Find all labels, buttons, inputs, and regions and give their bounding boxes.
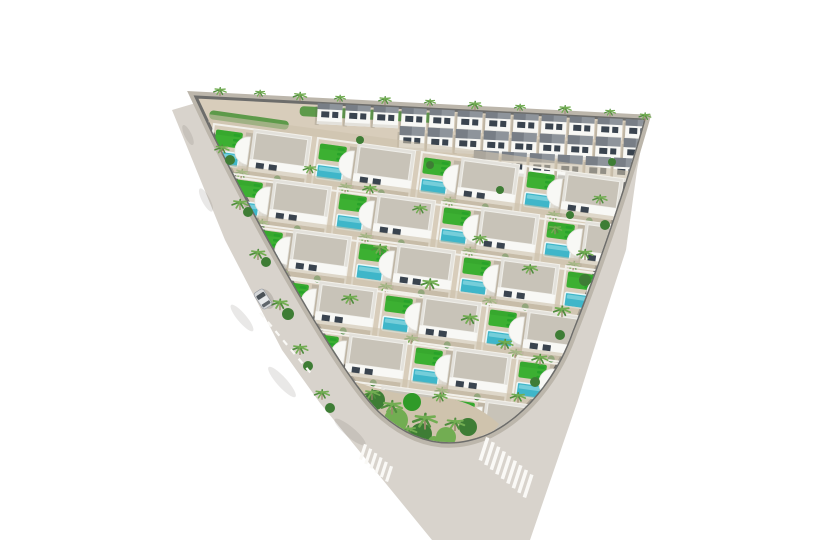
townhouse-window bbox=[459, 140, 467, 146]
townhouse-window bbox=[470, 141, 476, 147]
palm-crown bbox=[219, 88, 221, 90]
palm-crown bbox=[423, 415, 428, 420]
townhouse-window bbox=[444, 118, 450, 124]
townhouse-window bbox=[582, 147, 588, 153]
bush bbox=[566, 211, 574, 219]
townhouse-window bbox=[461, 119, 469, 125]
bush bbox=[530, 377, 540, 387]
townhouse-roof-slope bbox=[456, 129, 468, 139]
townhouse-window bbox=[573, 125, 581, 131]
palm-crown bbox=[278, 300, 281, 303]
palm-crown bbox=[299, 346, 302, 349]
palm-crown bbox=[564, 106, 566, 108]
garden-foliage bbox=[403, 393, 421, 411]
palm-crown bbox=[369, 186, 372, 189]
townhouse-window bbox=[571, 146, 579, 152]
bush bbox=[426, 161, 434, 169]
townhouse-window bbox=[360, 113, 366, 119]
townhouse-window bbox=[332, 112, 338, 118]
palm-crown bbox=[554, 226, 557, 229]
townhouse-roof-slope bbox=[568, 135, 580, 145]
palm-crown bbox=[221, 146, 224, 149]
townhouse-window bbox=[349, 113, 357, 119]
townhouse-window bbox=[528, 122, 534, 128]
palm-crown bbox=[257, 251, 260, 254]
townhouse-window bbox=[405, 116, 413, 122]
palm-crown bbox=[406, 427, 409, 430]
palm-crown bbox=[349, 296, 352, 299]
villa-window bbox=[334, 316, 343, 323]
bush bbox=[356, 136, 364, 144]
palm-crown bbox=[299, 93, 302, 96]
palm-crown bbox=[644, 114, 646, 116]
townhouse-roof-slope bbox=[624, 138, 636, 148]
townhouse-window bbox=[517, 122, 525, 128]
palm-crown bbox=[379, 246, 382, 249]
townhouse-window bbox=[498, 142, 504, 148]
bush bbox=[282, 308, 294, 320]
villa-window bbox=[295, 263, 304, 270]
bush bbox=[261, 257, 271, 267]
palm-crown bbox=[584, 251, 587, 254]
palm-crown bbox=[429, 100, 431, 102]
townhouse-roof-slope bbox=[512, 132, 524, 142]
townhouse-window bbox=[416, 116, 422, 122]
villa-window bbox=[503, 291, 512, 298]
villa-window bbox=[321, 315, 330, 322]
townhouse-window bbox=[388, 115, 394, 121]
townhouse-window bbox=[612, 127, 618, 133]
bush bbox=[225, 155, 235, 165]
palm-crown bbox=[259, 91, 261, 93]
palm-crown bbox=[384, 97, 386, 99]
villa-window bbox=[542, 344, 551, 351]
palm-crown bbox=[560, 307, 563, 310]
bush bbox=[325, 403, 335, 413]
townhouse-roof-slope bbox=[428, 128, 440, 138]
townhouse-window bbox=[515, 143, 523, 149]
townhouse-window bbox=[545, 123, 553, 129]
townhouse-window bbox=[489, 120, 497, 126]
bush bbox=[608, 158, 616, 166]
townhouse-window bbox=[556, 124, 562, 130]
bush bbox=[243, 207, 253, 217]
palm-crown bbox=[519, 105, 521, 107]
palm-crown bbox=[239, 201, 242, 204]
palm-crown bbox=[339, 96, 341, 98]
villa-window bbox=[412, 278, 421, 285]
townhouse-window bbox=[433, 117, 441, 123]
palm-crown bbox=[529, 266, 532, 269]
palm-crown bbox=[468, 315, 471, 318]
bush bbox=[555, 330, 565, 340]
bush bbox=[496, 186, 504, 194]
townhouse-window bbox=[543, 145, 551, 151]
townhouse-roof-slope bbox=[586, 156, 598, 166]
townhouse-window bbox=[431, 139, 439, 145]
bush bbox=[600, 220, 610, 230]
villa-window bbox=[438, 330, 447, 337]
palm-crown bbox=[599, 196, 602, 199]
townhouse-window bbox=[629, 128, 637, 134]
palm-crown bbox=[479, 236, 482, 239]
palm-crown bbox=[504, 341, 507, 344]
townhouse-window bbox=[472, 119, 478, 125]
townhouse-window bbox=[487, 142, 495, 148]
aerial-render-svg bbox=[0, 0, 825, 540]
palm-crown bbox=[419, 206, 422, 209]
townhouse-window bbox=[599, 148, 607, 154]
palm-crown bbox=[609, 110, 611, 112]
palm-crown bbox=[474, 102, 477, 105]
villa-window bbox=[529, 343, 538, 350]
palm-crown bbox=[371, 391, 374, 394]
villa-window bbox=[399, 277, 408, 284]
townhouse-window bbox=[526, 144, 532, 150]
palm-crown bbox=[453, 420, 457, 424]
palm-crown bbox=[539, 356, 542, 359]
townhouse-roof-slope bbox=[484, 131, 496, 141]
townhouse-window bbox=[321, 111, 329, 117]
townhouse-roof-slope bbox=[596, 137, 608, 147]
townhouse-window bbox=[601, 126, 609, 132]
villa-window bbox=[516, 292, 525, 299]
townhouse-window bbox=[610, 148, 616, 154]
palm-crown bbox=[390, 402, 394, 406]
villa-window bbox=[308, 264, 317, 271]
townhouse-window bbox=[442, 139, 448, 145]
townhouse-window bbox=[377, 114, 385, 120]
palm-crown bbox=[439, 394, 442, 397]
palm-crown bbox=[517, 394, 520, 397]
villa-window bbox=[425, 329, 434, 336]
townhouse-window bbox=[584, 125, 590, 131]
townhouse-window bbox=[554, 145, 560, 151]
palm-crown bbox=[309, 166, 312, 169]
townhouse-roof-slope bbox=[540, 134, 552, 144]
bush bbox=[579, 274, 591, 286]
palm-crown bbox=[321, 391, 324, 394]
aerial-render-of-villa-development bbox=[0, 0, 825, 540]
townhouse-window bbox=[500, 121, 506, 127]
townhouse-roof-slope bbox=[400, 126, 412, 136]
palm-crown bbox=[428, 280, 431, 283]
